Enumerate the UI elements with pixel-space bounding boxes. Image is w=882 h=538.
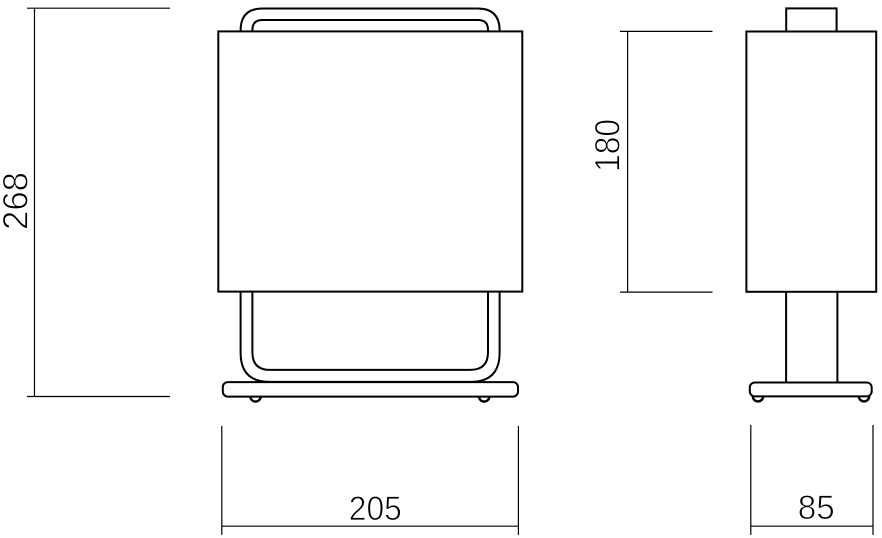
svg-text:180: 180: [588, 119, 627, 172]
svg-text:205: 205: [349, 490, 402, 528]
svg-text:268: 268: [0, 172, 36, 230]
svg-text:85: 85: [798, 489, 835, 527]
